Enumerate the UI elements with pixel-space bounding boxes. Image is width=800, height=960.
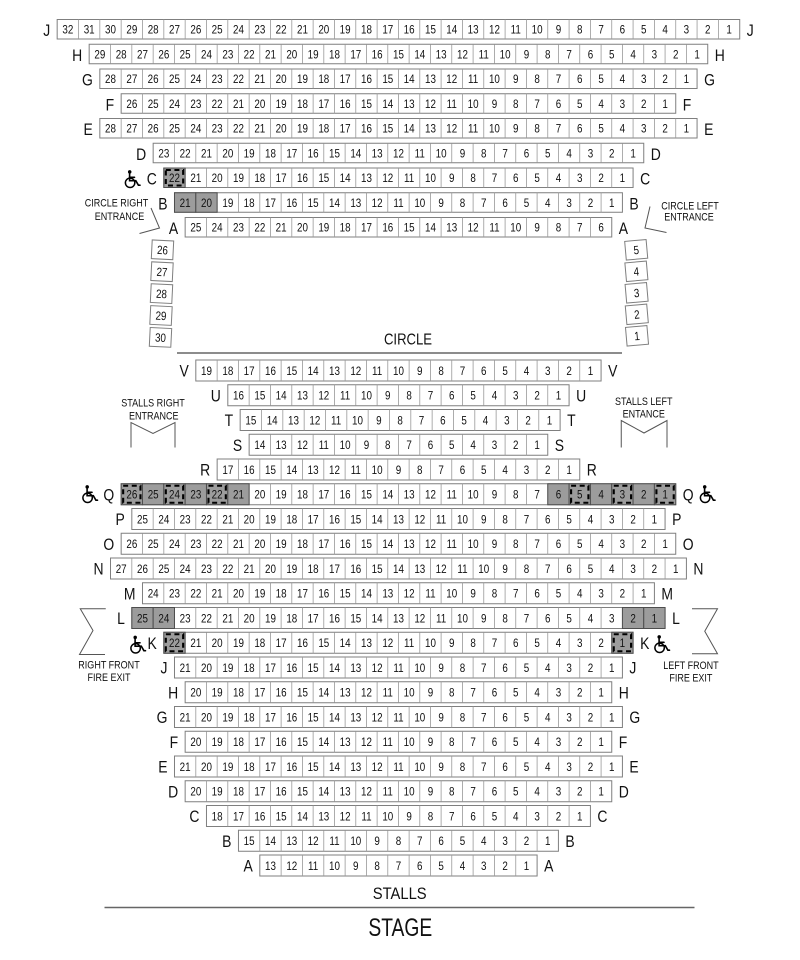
svg-text:8: 8 — [460, 761, 465, 774]
svg-text:16: 16 — [276, 736, 287, 749]
svg-text:16: 16 — [404, 24, 415, 37]
svg-text:10: 10 — [404, 786, 415, 799]
svg-text:U: U — [211, 387, 221, 406]
svg-text:3: 3 — [556, 786, 561, 799]
svg-text:22: 22 — [233, 123, 244, 136]
svg-text:31: 31 — [84, 24, 95, 37]
svg-text:10: 10 — [350, 835, 361, 848]
svg-text:3: 3 — [481, 860, 486, 873]
svg-text:18: 18 — [297, 489, 308, 502]
svg-text:5: 5 — [524, 662, 529, 675]
svg-text:8: 8 — [417, 464, 422, 477]
svg-text:14: 14 — [382, 489, 393, 502]
svg-text:14: 14 — [340, 637, 351, 650]
svg-text:14: 14 — [286, 464, 297, 477]
svg-text:4: 4 — [633, 266, 640, 280]
svg-text:21: 21 — [233, 98, 244, 111]
svg-text:4: 4 — [598, 489, 603, 502]
svg-text:11: 11 — [489, 222, 499, 235]
svg-text:9: 9 — [428, 736, 433, 749]
svg-text:16: 16 — [308, 148, 319, 161]
svg-text:10: 10 — [414, 197, 425, 210]
svg-text:12: 12 — [286, 860, 297, 873]
svg-text:1: 1 — [694, 49, 699, 62]
svg-text:18: 18 — [276, 588, 287, 601]
svg-text:9: 9 — [385, 390, 390, 403]
svg-text:7: 7 — [460, 365, 465, 378]
svg-text:19: 19 — [318, 222, 329, 235]
svg-text:23: 23 — [180, 514, 191, 527]
svg-text:7: 7 — [534, 489, 539, 502]
svg-text:6: 6 — [577, 123, 582, 136]
svg-text:17: 17 — [244, 365, 255, 378]
svg-text:R: R — [200, 461, 210, 480]
svg-text:F: F — [106, 96, 115, 115]
svg-text:14: 14 — [318, 687, 329, 700]
svg-text:19: 19 — [286, 563, 297, 576]
svg-text:22: 22 — [169, 172, 180, 185]
svg-text:9: 9 — [353, 860, 358, 873]
svg-text:24: 24 — [148, 588, 159, 601]
svg-text:8: 8 — [534, 123, 539, 136]
svg-text:24: 24 — [180, 563, 191, 576]
svg-text:15: 15 — [318, 172, 329, 185]
svg-text:5: 5 — [513, 687, 518, 700]
svg-text:6: 6 — [545, 613, 550, 626]
svg-text:21: 21 — [265, 49, 276, 62]
svg-text:9: 9 — [556, 24, 561, 37]
svg-text:21: 21 — [222, 613, 233, 626]
svg-text:27: 27 — [126, 123, 137, 136]
svg-text:21: 21 — [180, 761, 191, 774]
svg-text:2: 2 — [588, 761, 593, 774]
svg-text:19: 19 — [276, 98, 287, 111]
svg-text:12: 12 — [361, 786, 372, 799]
svg-text:4: 4 — [577, 588, 582, 601]
svg-text:10: 10 — [510, 222, 521, 235]
svg-text:7: 7 — [417, 835, 422, 848]
svg-text:ENTANCE: ENTANCE — [623, 409, 666, 421]
svg-text:14: 14 — [308, 365, 319, 378]
svg-text:16: 16 — [286, 197, 297, 210]
svg-text:10: 10 — [532, 24, 543, 37]
svg-text:11: 11 — [340, 390, 350, 403]
svg-text:9: 9 — [492, 98, 497, 111]
svg-text:19: 19 — [254, 588, 265, 601]
svg-text:3: 3 — [534, 811, 539, 824]
svg-text:10: 10 — [361, 390, 372, 403]
svg-text:8: 8 — [524, 563, 529, 576]
svg-text:9: 9 — [534, 222, 539, 235]
svg-text:7: 7 — [481, 761, 486, 774]
svg-text:10: 10 — [425, 172, 436, 185]
svg-text:FIRE EXIT: FIRE EXIT — [87, 672, 130, 684]
svg-text:12: 12 — [297, 439, 308, 452]
svg-text:18: 18 — [361, 24, 372, 37]
svg-text:5: 5 — [438, 860, 443, 873]
svg-text:STALLS LEFT: STALLS LEFT — [615, 396, 672, 408]
svg-text:7: 7 — [428, 390, 433, 403]
svg-text:13: 13 — [425, 73, 436, 86]
svg-text:4: 4 — [598, 538, 603, 551]
svg-text:12: 12 — [372, 761, 383, 774]
svg-text:10: 10 — [352, 415, 363, 428]
svg-text:18: 18 — [244, 761, 255, 774]
svg-text:23: 23 — [222, 49, 233, 62]
svg-text:25: 25 — [169, 73, 180, 86]
svg-text:7: 7 — [524, 613, 529, 626]
svg-text:5: 5 — [492, 811, 497, 824]
svg-text:6: 6 — [417, 860, 422, 873]
svg-text:L: L — [117, 610, 125, 629]
svg-text:9: 9 — [524, 49, 529, 62]
svg-text:17: 17 — [340, 73, 351, 86]
svg-text:10: 10 — [468, 98, 479, 111]
svg-text:26: 26 — [158, 49, 169, 62]
svg-text:H: H — [619, 684, 629, 703]
svg-text:4: 4 — [620, 73, 625, 86]
svg-text:17: 17 — [340, 123, 351, 136]
svg-text:8: 8 — [481, 148, 486, 161]
svg-text:11: 11 — [393, 197, 403, 210]
svg-text:16: 16 — [372, 49, 383, 62]
svg-text:M: M — [661, 585, 673, 604]
svg-text:15: 15 — [308, 761, 319, 774]
svg-text:23: 23 — [190, 98, 201, 111]
svg-text:14: 14 — [267, 415, 278, 428]
svg-text:24: 24 — [158, 613, 169, 626]
svg-text:11: 11 — [329, 835, 339, 848]
svg-text:1: 1 — [630, 148, 635, 161]
svg-text:1: 1 — [684, 73, 689, 86]
svg-text:8: 8 — [470, 172, 475, 185]
svg-text:12: 12 — [446, 123, 457, 136]
svg-text:3: 3 — [577, 172, 582, 185]
svg-text:7: 7 — [406, 439, 411, 452]
svg-text:19: 19 — [212, 736, 223, 749]
svg-text:2: 2 — [598, 172, 603, 185]
svg-text:29: 29 — [155, 310, 167, 324]
svg-text:8: 8 — [577, 24, 582, 37]
svg-text:14: 14 — [382, 538, 393, 551]
svg-text:J: J — [629, 659, 636, 678]
svg-text:8: 8 — [438, 365, 443, 378]
svg-text:2: 2 — [641, 538, 646, 551]
svg-text:10: 10 — [457, 514, 468, 527]
svg-text:7: 7 — [502, 148, 507, 161]
svg-text:13: 13 — [297, 390, 308, 403]
svg-text:U: U — [576, 387, 586, 406]
svg-text:15: 15 — [340, 588, 351, 601]
svg-text:25: 25 — [148, 489, 159, 502]
svg-text:13: 13 — [382, 588, 393, 601]
svg-text:20: 20 — [318, 24, 329, 37]
svg-text:13: 13 — [276, 439, 287, 452]
svg-text:11: 11 — [331, 415, 341, 428]
svg-text:5: 5 — [513, 786, 518, 799]
svg-text:9: 9 — [428, 786, 433, 799]
svg-text:4: 4 — [556, 172, 561, 185]
svg-text:21: 21 — [233, 538, 244, 551]
svg-text:E: E — [704, 121, 713, 140]
svg-text:16: 16 — [361, 73, 372, 86]
svg-text:3: 3 — [609, 514, 614, 527]
svg-text:3: 3 — [620, 98, 625, 111]
svg-text:4: 4 — [598, 98, 603, 111]
svg-text:13: 13 — [308, 464, 319, 477]
svg-text:27: 27 — [137, 49, 148, 62]
svg-text:8: 8 — [406, 390, 411, 403]
svg-text:18: 18 — [265, 148, 276, 161]
svg-text:14: 14 — [404, 73, 415, 86]
svg-text:2: 2 — [502, 860, 507, 873]
svg-text:G: G — [157, 709, 168, 728]
svg-text:E: E — [158, 758, 167, 777]
svg-text:1: 1 — [662, 98, 667, 111]
svg-text:15: 15 — [297, 736, 308, 749]
svg-text:2: 2 — [609, 148, 614, 161]
svg-text:12: 12 — [329, 464, 340, 477]
svg-text:16: 16 — [329, 613, 340, 626]
svg-text:6: 6 — [502, 662, 507, 675]
svg-text:22: 22 — [276, 24, 287, 37]
svg-text:16: 16 — [286, 761, 297, 774]
svg-text:1: 1 — [534, 439, 539, 452]
svg-text:11: 11 — [319, 439, 329, 452]
svg-text:17: 17 — [318, 538, 329, 551]
svg-text:6: 6 — [449, 390, 454, 403]
svg-text:18: 18 — [329, 49, 340, 62]
svg-text:17: 17 — [361, 222, 372, 235]
svg-text:13: 13 — [414, 563, 425, 576]
svg-text:19: 19 — [297, 123, 308, 136]
svg-text:25: 25 — [148, 538, 159, 551]
svg-text:19: 19 — [244, 148, 255, 161]
svg-text:8: 8 — [428, 811, 433, 824]
svg-text:17: 17 — [265, 197, 276, 210]
svg-text:V: V — [608, 362, 618, 381]
svg-text:3: 3 — [620, 538, 625, 551]
svg-text:16: 16 — [382, 222, 393, 235]
svg-text:12: 12 — [404, 588, 415, 601]
svg-text:21: 21 — [297, 24, 308, 37]
svg-text:21: 21 — [276, 222, 287, 235]
svg-text:11: 11 — [351, 464, 361, 477]
svg-text:A: A — [544, 857, 554, 876]
svg-text:1: 1 — [598, 736, 603, 749]
svg-text:18: 18 — [308, 563, 319, 576]
svg-text:12: 12 — [350, 365, 361, 378]
svg-text:19: 19 — [212, 687, 223, 700]
svg-text:16: 16 — [276, 687, 287, 700]
svg-text:3: 3 — [502, 835, 507, 848]
svg-text:19: 19 — [265, 514, 276, 527]
svg-text:18: 18 — [340, 222, 351, 235]
svg-text:Q: Q — [103, 486, 114, 505]
svg-text:12: 12 — [425, 489, 436, 502]
svg-text:19: 19 — [297, 73, 308, 86]
svg-text:17: 17 — [254, 786, 265, 799]
svg-text:10: 10 — [414, 712, 425, 725]
svg-text:20: 20 — [222, 148, 233, 161]
svg-text:2: 2 — [588, 662, 593, 675]
svg-text:B: B — [629, 195, 638, 214]
svg-text:15: 15 — [308, 662, 319, 675]
svg-text:19: 19 — [276, 538, 287, 551]
svg-text:5: 5 — [598, 123, 603, 136]
svg-text:17: 17 — [254, 687, 265, 700]
svg-text:7: 7 — [513, 588, 518, 601]
svg-text:19: 19 — [222, 761, 233, 774]
svg-text:10: 10 — [478, 563, 489, 576]
svg-text:5: 5 — [641, 24, 646, 37]
svg-text:17: 17 — [276, 172, 287, 185]
svg-text:14: 14 — [382, 98, 393, 111]
svg-text:5: 5 — [449, 439, 454, 452]
svg-text:6: 6 — [556, 98, 561, 111]
svg-text:7: 7 — [492, 172, 497, 185]
svg-text:28: 28 — [105, 73, 116, 86]
svg-text:22: 22 — [244, 49, 255, 62]
svg-text:11: 11 — [404, 172, 414, 185]
svg-text:26: 26 — [137, 563, 148, 576]
svg-text:7: 7 — [492, 637, 497, 650]
svg-text:1: 1 — [556, 390, 561, 403]
svg-text:10: 10 — [414, 761, 425, 774]
svg-text:17: 17 — [318, 489, 329, 502]
svg-text:20: 20 — [190, 736, 201, 749]
svg-text:15: 15 — [425, 24, 436, 37]
svg-text:14: 14 — [318, 736, 329, 749]
svg-text:18: 18 — [244, 197, 255, 210]
svg-text:3: 3 — [641, 73, 646, 86]
svg-text:20: 20 — [190, 786, 201, 799]
svg-text:15: 15 — [308, 712, 319, 725]
svg-text:3: 3 — [609, 613, 614, 626]
svg-text:4: 4 — [534, 736, 539, 749]
svg-text:5: 5 — [524, 197, 529, 210]
svg-text:28: 28 — [105, 123, 116, 136]
svg-text:18: 18 — [244, 712, 255, 725]
svg-text:5: 5 — [534, 172, 539, 185]
svg-text:15: 15 — [308, 197, 319, 210]
svg-text:13: 13 — [318, 811, 329, 824]
svg-text:11: 11 — [511, 24, 521, 37]
svg-text:1: 1 — [652, 514, 657, 527]
svg-text:11: 11 — [308, 860, 318, 873]
svg-text:7: 7 — [556, 123, 561, 136]
svg-text:3: 3 — [566, 197, 571, 210]
svg-text:25: 25 — [180, 49, 191, 62]
svg-text:12: 12 — [372, 662, 383, 675]
svg-text:25: 25 — [137, 514, 148, 527]
svg-text:22: 22 — [212, 98, 223, 111]
svg-text:8: 8 — [502, 613, 507, 626]
svg-text:15: 15 — [297, 786, 308, 799]
svg-text:5: 5 — [534, 637, 539, 650]
svg-text:13: 13 — [340, 736, 351, 749]
svg-text:12: 12 — [382, 172, 393, 185]
svg-text:16: 16 — [297, 172, 308, 185]
svg-text:12: 12 — [414, 613, 425, 626]
svg-text:4: 4 — [492, 390, 497, 403]
svg-text:9: 9 — [481, 613, 486, 626]
svg-text:24: 24 — [212, 222, 223, 235]
svg-text:2: 2 — [662, 73, 667, 86]
svg-text:20: 20 — [201, 662, 212, 675]
svg-text:14: 14 — [414, 49, 425, 62]
svg-text:17: 17 — [286, 148, 297, 161]
svg-text:20: 20 — [244, 613, 255, 626]
svg-text:16: 16 — [297, 637, 308, 650]
svg-text:2: 2 — [513, 439, 518, 452]
svg-text:11: 11 — [447, 489, 457, 502]
svg-text:14: 14 — [404, 123, 415, 136]
svg-text:23: 23 — [180, 613, 191, 626]
svg-text:22: 22 — [169, 637, 180, 650]
svg-text:20: 20 — [254, 489, 265, 502]
svg-text:20: 20 — [201, 761, 212, 774]
svg-text:15: 15 — [372, 563, 383, 576]
svg-text:21: 21 — [201, 148, 212, 161]
svg-text:17: 17 — [382, 24, 393, 37]
svg-text:17: 17 — [318, 98, 329, 111]
svg-text:27: 27 — [126, 73, 137, 86]
svg-text:29: 29 — [126, 24, 137, 37]
svg-text:13: 13 — [372, 148, 383, 161]
svg-text:4: 4 — [588, 514, 593, 527]
svg-text:8: 8 — [460, 197, 465, 210]
svg-text:C: C — [640, 170, 650, 189]
svg-text:3: 3 — [556, 736, 561, 749]
svg-text:8: 8 — [534, 73, 539, 86]
svg-text:28: 28 — [148, 24, 159, 37]
svg-text:13: 13 — [350, 712, 361, 725]
svg-text:D: D — [651, 146, 661, 165]
svg-text:G: G — [82, 71, 93, 90]
svg-text:S: S — [555, 437, 564, 456]
svg-text:17: 17 — [308, 613, 319, 626]
svg-text:11: 11 — [436, 613, 446, 626]
svg-text:2: 2 — [566, 365, 571, 378]
svg-text:13: 13 — [404, 538, 415, 551]
svg-text:6: 6 — [460, 464, 465, 477]
svg-text:20: 20 — [254, 98, 265, 111]
svg-text:10: 10 — [468, 489, 479, 502]
svg-text:6: 6 — [534, 588, 539, 601]
svg-text:1: 1 — [598, 786, 603, 799]
svg-text:8: 8 — [396, 835, 401, 848]
svg-text:26: 26 — [148, 123, 159, 136]
svg-text:17: 17 — [265, 662, 276, 675]
svg-text:26: 26 — [126, 98, 137, 111]
svg-text:18: 18 — [318, 123, 329, 136]
svg-text:7: 7 — [470, 736, 475, 749]
svg-text:18: 18 — [297, 98, 308, 111]
svg-text:23: 23 — [190, 538, 201, 551]
svg-text:O: O — [103, 536, 114, 555]
svg-text:B: B — [222, 833, 231, 852]
svg-text:13: 13 — [350, 761, 361, 774]
svg-text:16: 16 — [286, 712, 297, 725]
svg-text:9: 9 — [364, 439, 369, 452]
svg-text:1: 1 — [588, 365, 593, 378]
svg-text:21: 21 — [180, 712, 191, 725]
svg-text:18: 18 — [297, 538, 308, 551]
svg-text:10: 10 — [404, 736, 415, 749]
svg-text:H: H — [168, 684, 178, 703]
svg-text:2: 2 — [673, 49, 678, 62]
